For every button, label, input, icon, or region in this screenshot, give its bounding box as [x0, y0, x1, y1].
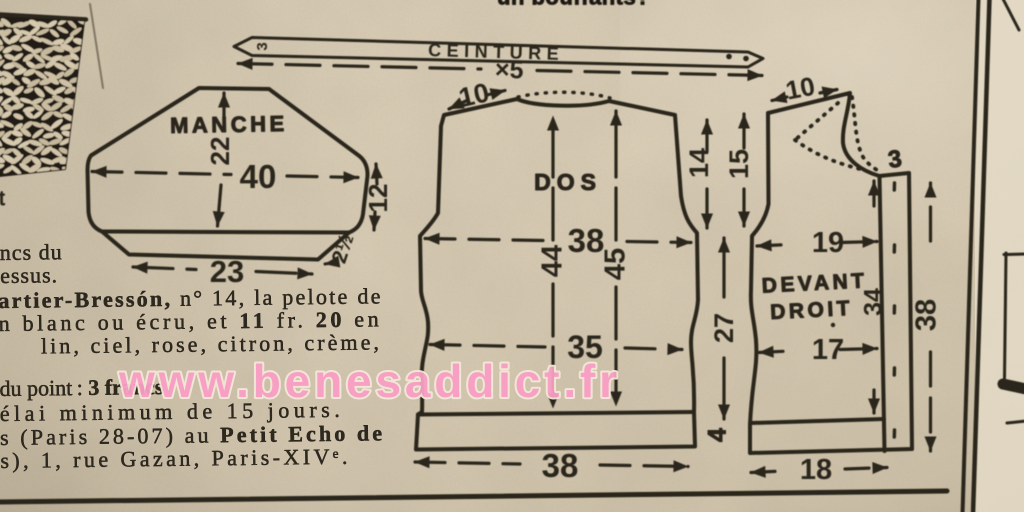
- svg-text:38: 38: [542, 447, 579, 484]
- svg-text:un bouffants?: un bouffants?: [497, 0, 650, 10]
- svg-text:DROIT: DROIT: [770, 297, 854, 324]
- svg-text:MANCHE: MANCHE: [170, 111, 288, 138]
- svg-text:45: 45: [600, 248, 632, 280]
- svg-text:27: 27: [709, 313, 739, 343]
- svg-text:12: 12: [363, 184, 393, 213]
- svg-text:nt: nt: [0, 188, 5, 210]
- svg-text:15: 15: [724, 149, 754, 179]
- svg-text:4: 4: [704, 428, 732, 442]
- svg-text:10: 10: [783, 71, 817, 106]
- svg-text:19: 19: [812, 227, 844, 259]
- svg-text:34: 34: [860, 288, 888, 316]
- svg-text:22: 22: [205, 137, 235, 166]
- svg-text:23: 23: [210, 254, 244, 289]
- svg-text:DOS: DOS: [534, 169, 602, 195]
- svg-text:38: 38: [911, 299, 943, 331]
- svg-text:40: 40: [240, 158, 277, 195]
- svg-text:www.benesaddict.fr: www.benesaddict.fr: [118, 355, 619, 407]
- svg-text:×5: ×5: [495, 56, 524, 85]
- svg-text:44: 44: [537, 245, 569, 277]
- svg-text:3: 3: [254, 42, 271, 50]
- svg-text:14: 14: [684, 148, 714, 178]
- svg-text:ncs du: ncs du: [0, 239, 63, 265]
- svg-text:18: 18: [800, 454, 832, 486]
- svg-text:17: 17: [812, 334, 844, 366]
- svg-text:essus.: essus.: [0, 262, 58, 288]
